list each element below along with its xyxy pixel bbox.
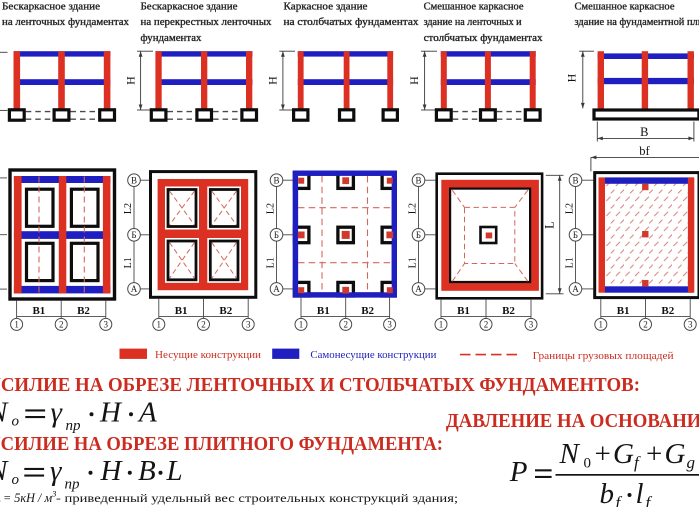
svg-text:L2: L2 xyxy=(123,203,134,214)
svg-text:B1: B1 xyxy=(617,305,630,317)
svg-text:р= 5кН / м3: р= 5кН / м3 xyxy=(0,489,56,507)
svg-text:А: А xyxy=(131,284,138,294)
svg-text:Б: Б xyxy=(274,230,279,240)
svg-text:L1: L1 xyxy=(565,257,576,268)
svg-text:Бескаркасное здание: Бескаркасное здание xyxy=(141,2,238,13)
svg-text:УСИЛИЕ НА ОБРЕЗЕ ПЛИТНОГО ФУНД: УСИЛИЕ НА ОБРЕЗЕ ПЛИТНОГО ФУНДАМЕНТА: xyxy=(0,433,443,455)
svg-text:А: А xyxy=(572,284,579,294)
svg-text:3: 3 xyxy=(529,320,534,330)
svg-text:L2: L2 xyxy=(565,203,576,214)
svg-text:2: 2 xyxy=(643,320,648,330)
svg-text:L1: L1 xyxy=(123,257,134,268)
svg-text:3: 3 xyxy=(246,320,251,330)
svg-text:B1: B1 xyxy=(317,305,330,317)
svg-text:2: 2 xyxy=(343,320,348,330)
svg-text:УСИЛИЕ НА ОБРЕЗЕ ЛЕНТОЧНЫХ И С: УСИЛИЕ НА ОБРЕЗЕ ЛЕНТОЧНЫХ И СТОЛБЧАТЫХ … xyxy=(0,374,640,396)
svg-text:B2: B2 xyxy=(77,305,90,317)
svg-text:Границы грузовых площадей: Границы грузовых площадей xyxy=(533,351,674,362)
svg-text:L2: L2 xyxy=(266,203,277,214)
svg-text:А: А xyxy=(415,284,422,294)
svg-text:H: H xyxy=(407,76,421,85)
svg-text:В: В xyxy=(572,175,578,185)
svg-text:Самонесущие конструкции: Самонесущие конструкции xyxy=(310,350,436,361)
svg-text:- приведенный удельный вес стр: - приведенный удельный вес строительных … xyxy=(56,491,458,505)
svg-text:на ленточных фундаментах: на ленточных фундаментах xyxy=(2,17,130,28)
svg-text:Бескаркасное здание: Бескаркасное здание xyxy=(2,2,100,13)
svg-text:Б: Б xyxy=(416,230,421,240)
svg-text:1: 1 xyxy=(14,320,19,330)
svg-text:В: В xyxy=(131,175,137,185)
svg-text:фундаментах: фундаментах xyxy=(141,33,203,44)
svg-text:Несущие конструкции: Несущие конструкции xyxy=(155,350,261,361)
svg-text:1: 1 xyxy=(157,320,162,330)
svg-text:Б: Б xyxy=(573,230,578,240)
svg-text:B1: B1 xyxy=(175,305,188,317)
svg-text:L1: L1 xyxy=(408,257,419,268)
svg-text:В: В xyxy=(415,175,421,185)
svg-text:L: L xyxy=(542,221,556,229)
svg-text:3: 3 xyxy=(387,320,392,330)
svg-text:1: 1 xyxy=(439,320,444,330)
svg-text:А: А xyxy=(273,284,280,294)
svg-text:H: H xyxy=(124,76,138,85)
svg-text:B2: B2 xyxy=(502,305,515,317)
svg-text:bf: bf xyxy=(639,144,650,158)
svg-text:3: 3 xyxy=(104,320,109,330)
svg-text:2: 2 xyxy=(201,320,206,330)
svg-text:H: H xyxy=(265,76,279,85)
svg-text:B2: B2 xyxy=(361,305,374,317)
svg-text:B2: B2 xyxy=(219,305,232,317)
svg-text:B1: B1 xyxy=(457,305,470,317)
svg-text:Б: Б xyxy=(131,230,136,240)
svg-text:3: 3 xyxy=(688,320,693,330)
svg-text:B: B xyxy=(640,125,648,139)
svg-text:ДАВЛЕНИЕ НА ОСНОВАНИЕ: ДАВЛЕНИЕ НА ОСНОВАНИЕ xyxy=(446,410,699,432)
svg-text:здание на фундаментной плите: здание на фундаментной плите xyxy=(575,17,699,28)
svg-text:L2: L2 xyxy=(408,203,419,214)
svg-text:2: 2 xyxy=(59,320,64,330)
svg-text:H: H xyxy=(565,73,579,82)
svg-text:Смешанное каркасное: Смешанное каркасное xyxy=(575,2,675,13)
svg-text:Каркасное здание: Каркасное здание xyxy=(284,2,368,13)
svg-text:L1: L1 xyxy=(266,257,277,268)
svg-text:на перекрестных ленточных: на перекрестных ленточных xyxy=(141,17,273,28)
svg-text:1: 1 xyxy=(599,320,604,330)
svg-text:B2: B2 xyxy=(661,305,674,317)
svg-text:здание на ленточных и: здание на ленточных и xyxy=(424,17,522,28)
svg-text:столбчатых фундаментах: столбчатых фундаментах xyxy=(424,33,544,44)
svg-text:P: P xyxy=(509,456,528,488)
svg-text:Смешанное каркасное: Смешанное каркасное xyxy=(424,2,524,13)
svg-text:2: 2 xyxy=(484,320,489,330)
svg-text:1: 1 xyxy=(299,320,304,330)
svg-text:В: В xyxy=(273,175,279,185)
svg-text:на столбчатых фундаментах: на столбчатых фундаментах xyxy=(284,17,420,28)
svg-text:B1: B1 xyxy=(32,305,45,317)
